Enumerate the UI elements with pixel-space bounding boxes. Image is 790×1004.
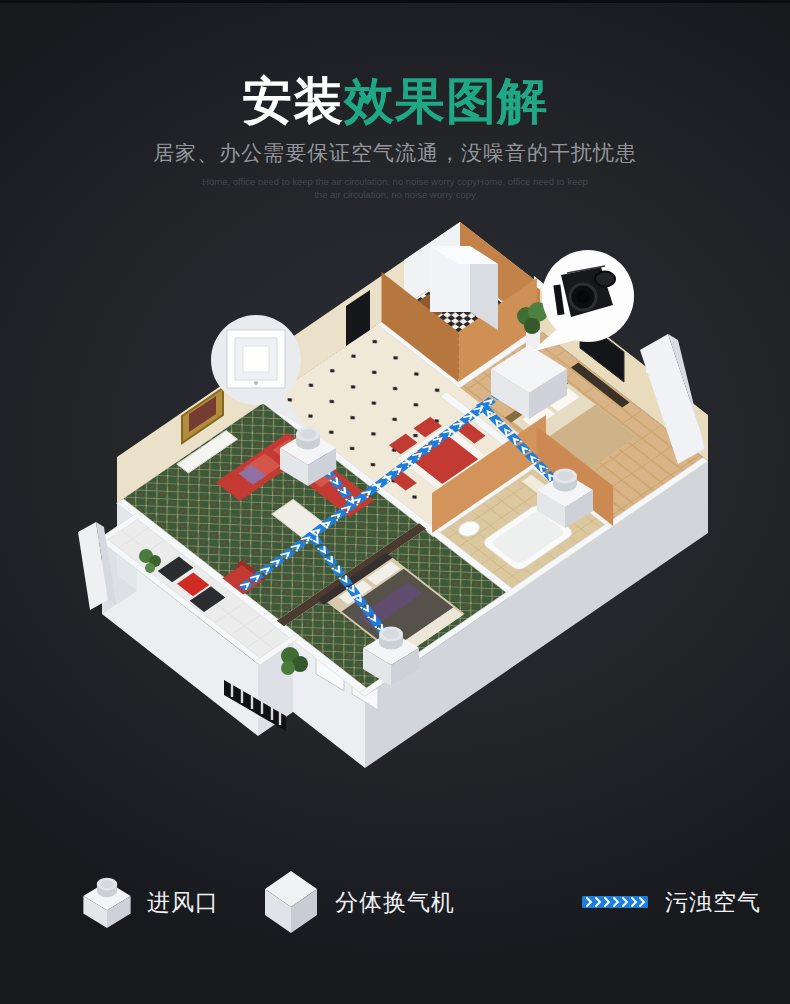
vent-panel-icon [227,330,285,388]
promo-page: 安装效果图解 居家、办公需要保证空气流通，没噪音的干扰忧患 Home, offi… [0,0,790,1004]
split-ventilator-3d-icon [262,867,320,937]
legend-item-air-inlet: 进风口 [82,862,219,942]
air-inlet-3d-icon [82,865,132,939]
legend-item-polluted-air: 污浊空气 [582,862,761,942]
polluted-air-flow-icon [582,893,650,911]
legend-item-ventilator: 分体换气机 [262,862,455,942]
legend-label: 污浊空气 [665,887,761,918]
legend: 进风口 分体换气机 污浊空气 [0,862,790,942]
floorplan-3d-render [0,0,790,1004]
legend-label: 分体换气机 [335,887,455,918]
legend-label: 进风口 [147,887,219,918]
